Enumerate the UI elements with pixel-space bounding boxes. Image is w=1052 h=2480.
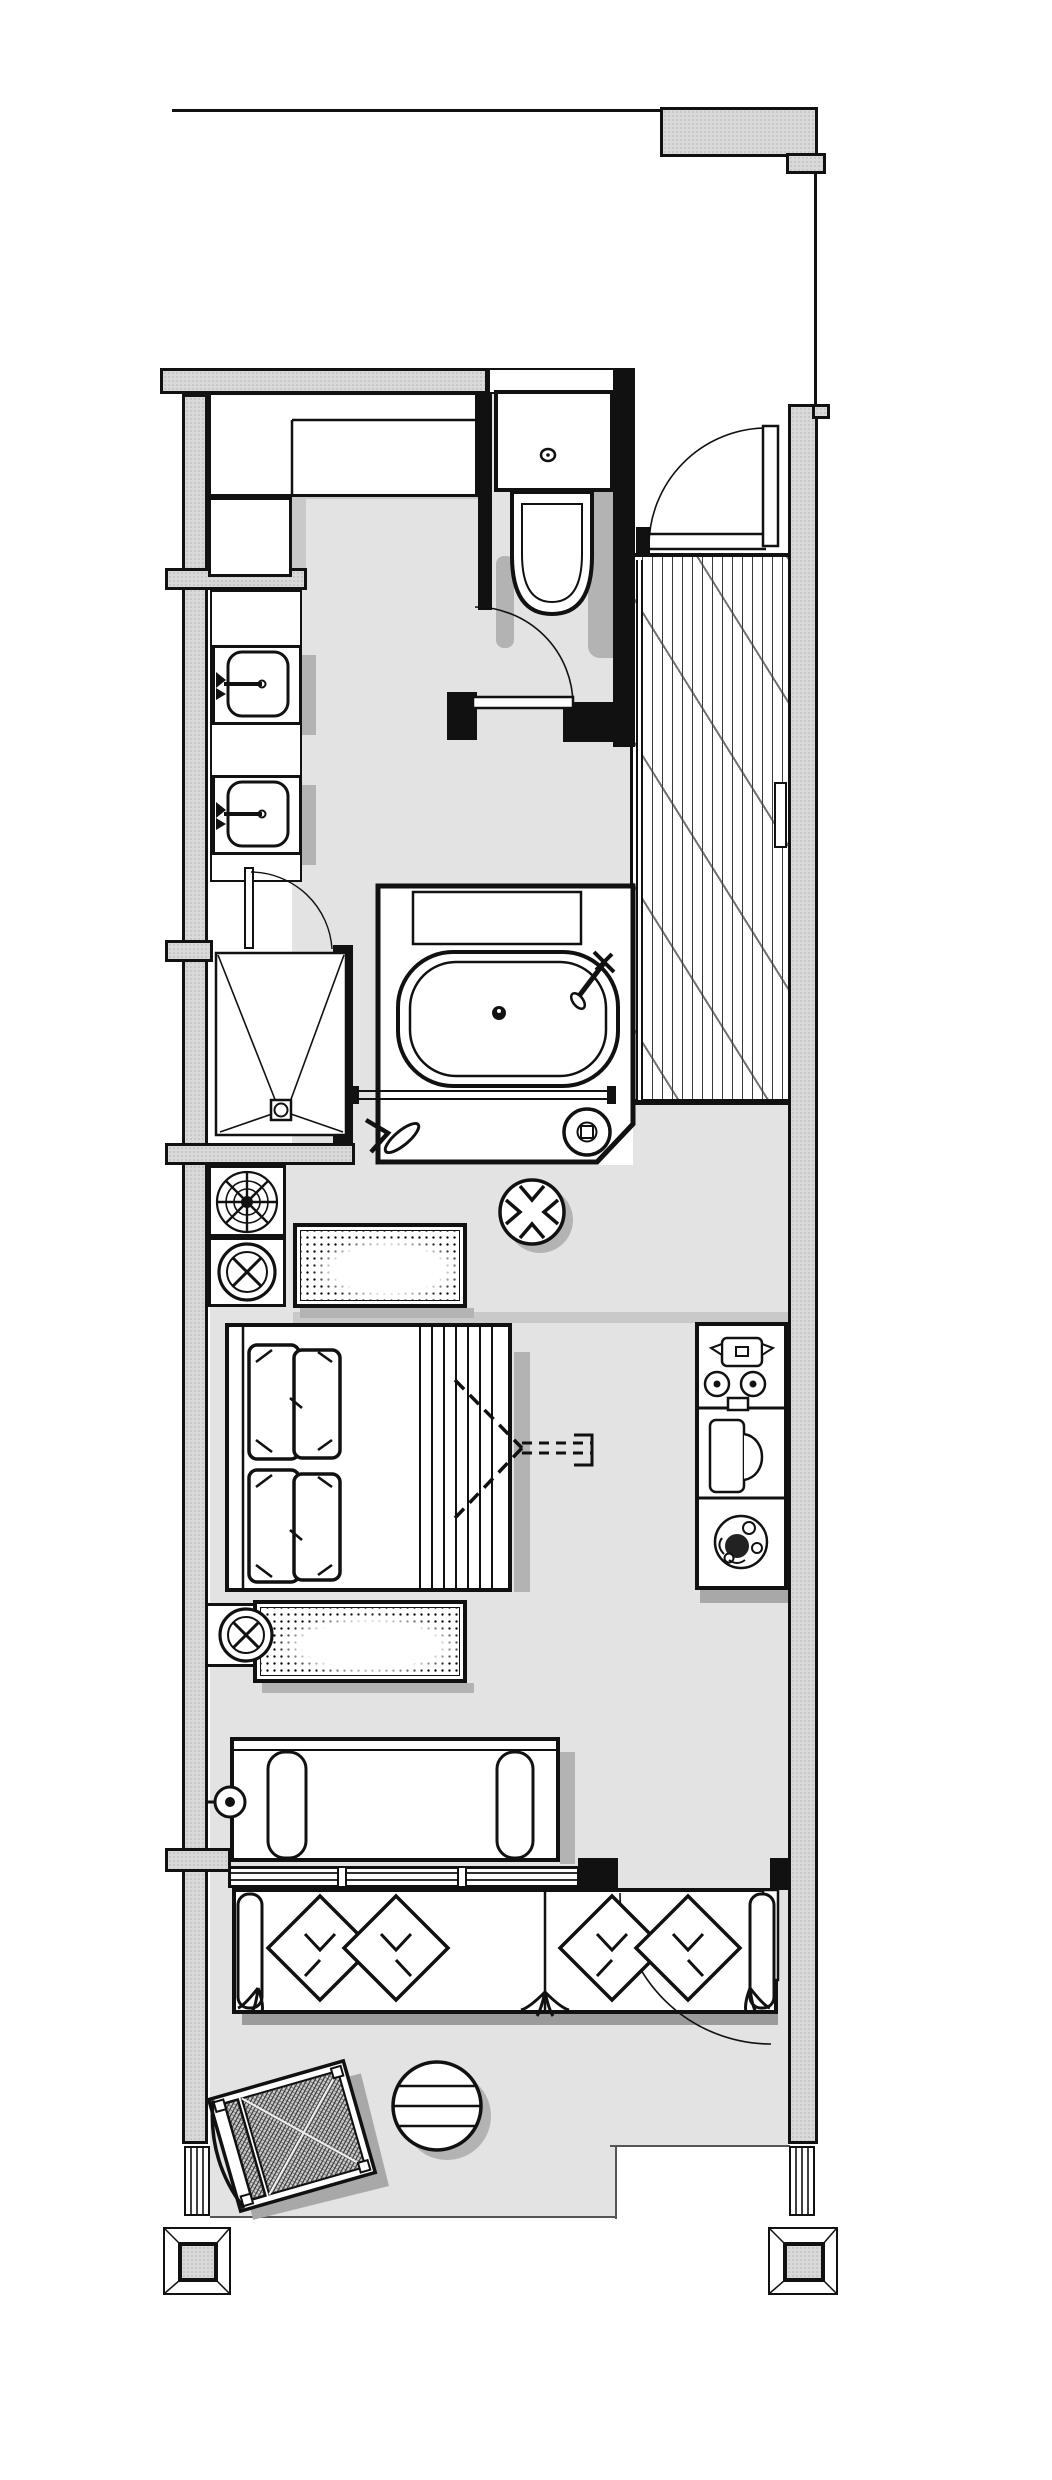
lounge-chair: [202, 2057, 393, 2229]
washbasin-upper: [216, 652, 288, 716]
coffee-station: [705, 1338, 773, 1410]
fan-coil-symbol: [217, 1172, 277, 1232]
shower: [216, 953, 346, 1135]
valve-circle-x-lower: [220, 1609, 272, 1661]
window-glazing: [231, 1867, 577, 1887]
bed-pillows: [249, 1345, 340, 1582]
valve-circle-x-upper: [219, 1244, 275, 1300]
plant: [715, 1516, 767, 1568]
shower-door[interactable]: [245, 868, 332, 949]
settee-details: [234, 1750, 556, 1858]
outdoor-sofa-details: [238, 1891, 774, 2016]
desk: [710, 1420, 762, 1492]
entry-door[interactable]: [636, 426, 778, 557]
washbasin-lower: [216, 782, 288, 846]
column-base-bevels: [165, 2229, 836, 2293]
closet-shelf-line: [292, 420, 475, 494]
bathtub: [398, 952, 618, 1086]
round-table: [393, 2062, 491, 2160]
toilet: [496, 392, 612, 614]
floor-drain: [564, 1109, 610, 1155]
bed-foot-runner: [420, 1327, 492, 1588]
tv-sightline: [455, 1380, 592, 1518]
wc-door[interactable]: [473, 607, 573, 708]
pouf: [500, 1180, 573, 1253]
linework-overlay: [0, 0, 1052, 2480]
floor-plan-canvas: [0, 0, 1052, 2480]
reading-light: [206, 1787, 245, 1817]
